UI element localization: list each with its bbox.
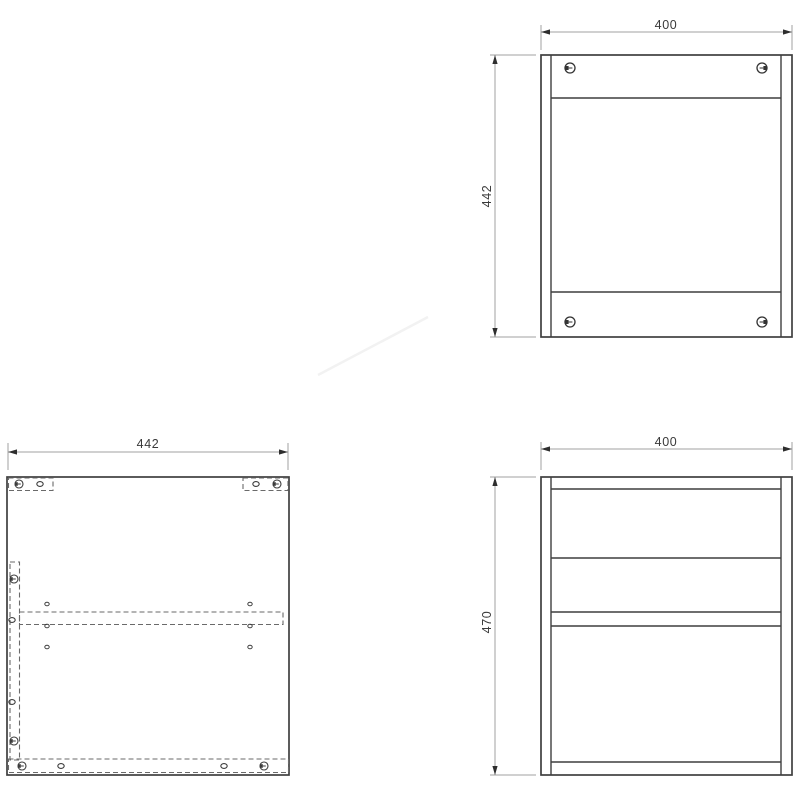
watermark-line [318,317,428,375]
shelf-pin-hole-icon [45,602,49,606]
hidden-outlines [9,478,289,773]
drawing-linework [0,0,800,800]
cam-lock-icon [757,317,767,327]
dim-label-side-width: 442 [126,437,170,451]
dim-label-front-width: 400 [644,435,688,449]
cam-lock-icon [15,480,23,488]
cam-lock-icon [565,63,575,73]
shelf-pin-hole-icon [45,645,49,649]
dim-label-front-height: 470 [480,600,494,644]
dim-label-back-width: 400 [644,18,688,32]
cam-lock-icon [260,762,268,770]
cam-lock-icon [18,762,26,770]
dimension-back-height [490,55,536,337]
cam-lock-icon [273,480,281,488]
cam-lock-icon [10,737,18,745]
cam-lock-icon [757,63,767,73]
cam-lock-icon [10,575,18,583]
dim-label-back-height: 442 [480,174,494,218]
dowel-hole-icon [37,482,43,487]
cam-lock-icon [565,317,575,327]
dowel-hole-icon [253,482,259,487]
dowel-hole-icon [58,764,64,769]
view-back-panel [541,55,792,337]
shelf-pin-hole-icon [248,645,252,649]
view-side-panel [7,477,289,775]
shelf-pin-hole-icon [248,602,252,606]
view-front [541,477,792,775]
drawing-canvas: 400 442 442 400 470 [0,0,800,800]
dowel-hole-icon [221,764,227,769]
dimension-front-height [490,477,536,775]
